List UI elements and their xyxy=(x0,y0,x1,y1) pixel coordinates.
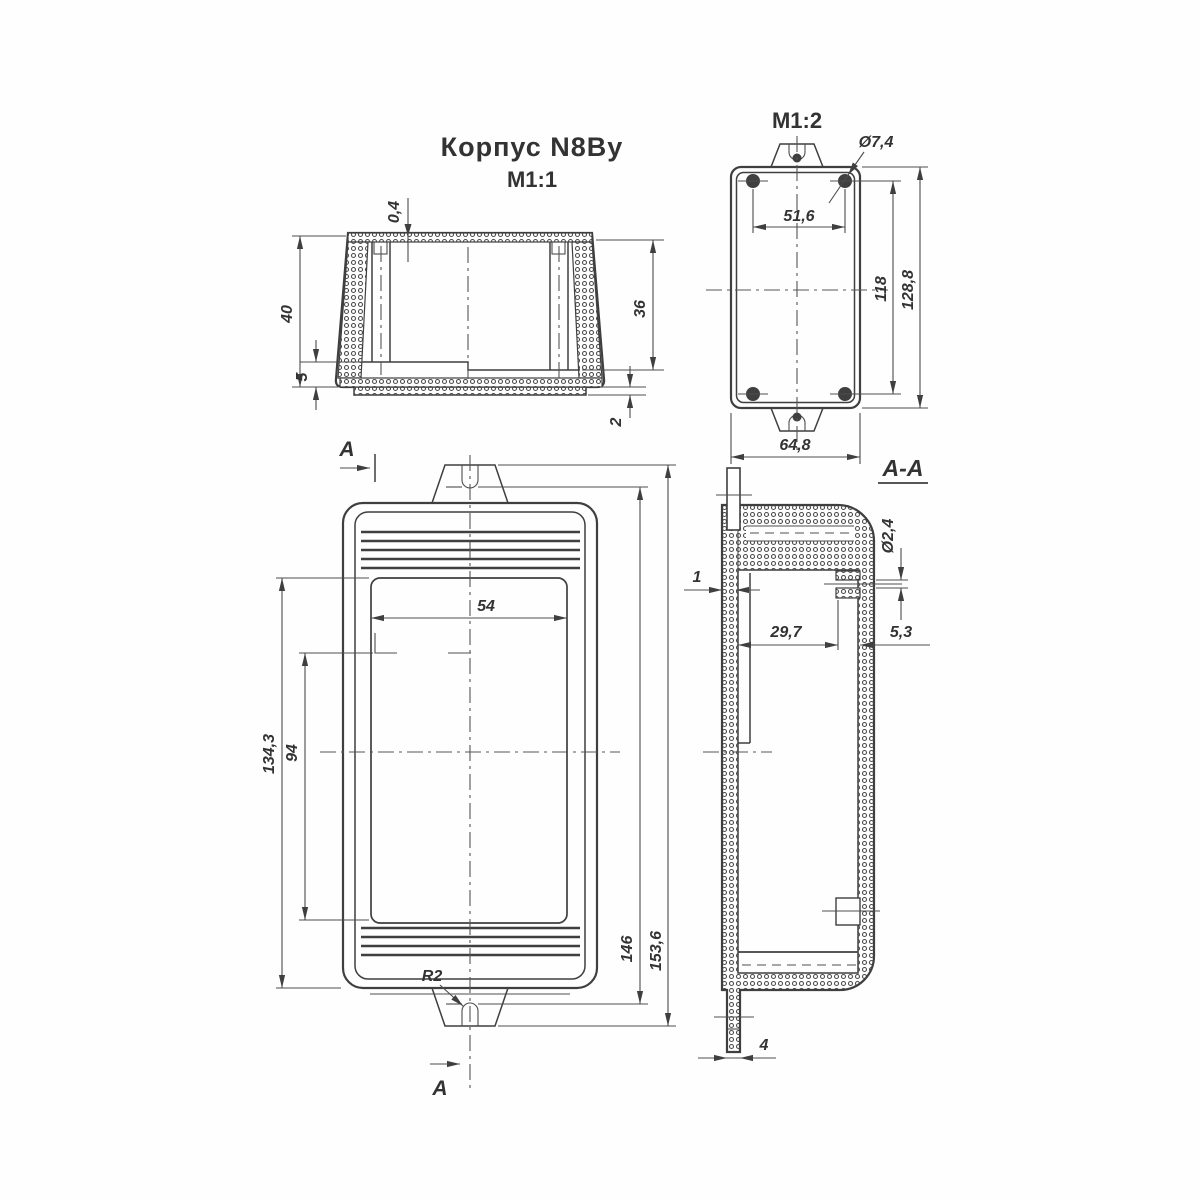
title-scale: М1:1 xyxy=(507,167,557,192)
dim-body-height-1288: 128,8 xyxy=(862,167,928,408)
drawing-title: Корпус N8By М1:1 xyxy=(441,132,624,192)
dim-panel-width-54-text: 54 xyxy=(477,598,495,615)
technical-drawing: Корпус N8By М1:1 xyxy=(0,0,1200,1200)
dim-body-width-648-text: 64,8 xyxy=(779,437,810,454)
dim-body-height-1288-text: 128,8 xyxy=(900,270,917,310)
dim-height-40: 40 xyxy=(279,236,346,387)
back-view-scale: М1:2 xyxy=(772,108,822,133)
side-bottom-wall xyxy=(340,378,602,387)
dim-lip-2-text: 2 xyxy=(608,417,625,427)
section-cut-bottom: А xyxy=(430,1064,460,1100)
section-cut-top: А xyxy=(338,438,375,482)
front-view: А А 54 134,3 94 xyxy=(261,438,676,1100)
side-view: 0,4 40 5 36 2 xyxy=(279,198,664,427)
side-top-wall xyxy=(348,233,592,242)
title-text: Корпус N8By xyxy=(441,132,624,162)
dim-height-40-text: 40 xyxy=(279,305,296,324)
dim-rib-04-text: 0,4 xyxy=(386,201,403,223)
back-view: М1:2 Ø7,4 xyxy=(706,108,928,464)
dim-overall-height-1536-text: 153,6 xyxy=(648,931,665,971)
dim-tab-thickness-4-text: 4 xyxy=(759,1037,769,1054)
section-view: А-А 1 Ø2,4 29,7 5,3 xyxy=(684,455,930,1058)
section-cut-top-letter: А xyxy=(338,438,354,461)
drawing-canvas: Корпус N8By М1:1 xyxy=(0,0,1200,1200)
dim-hole-dia-24-text: Ø2,4 xyxy=(880,519,897,554)
dim-holes-span-118-text: 118 xyxy=(873,276,890,302)
dim-panel-height-94-text: 94 xyxy=(284,744,301,762)
section-label: А-А xyxy=(878,455,928,483)
dim-body-height-146-text: 146 xyxy=(619,936,636,963)
section-roof-channel xyxy=(746,526,854,541)
dim-holes-span-516-text: 51,6 xyxy=(783,208,814,225)
dim-inner-height-1343-text: 134,3 xyxy=(261,734,278,774)
dim-wall-1-text: 1 xyxy=(693,569,702,586)
side-body xyxy=(336,233,604,387)
dim-boss-offset-297-text: 29,7 xyxy=(769,624,802,641)
dim-hole-dia-24: Ø2,4 xyxy=(876,519,908,620)
dim-boss-width-53-text: 5,3 xyxy=(890,624,912,641)
dim-shelf-5-text: 5 xyxy=(294,371,311,381)
dim-hole-dia-74-text: Ø7,4 xyxy=(859,134,894,151)
section-label-text: А-А xyxy=(882,455,924,481)
dim-notch-radius-r2-text: R2 xyxy=(422,968,443,985)
section-cut-bottom-letter: А xyxy=(431,1077,447,1100)
dim-depth-36-text: 36 xyxy=(632,300,649,318)
back-body xyxy=(731,167,860,408)
side-bottom-lip xyxy=(354,387,586,395)
